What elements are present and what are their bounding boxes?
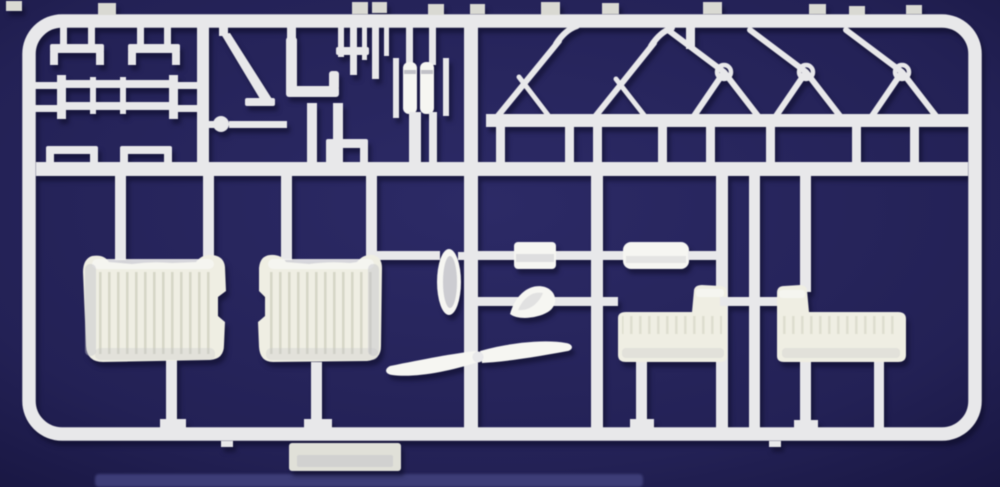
background-edge-strip <box>95 474 643 487</box>
vertical-runner-a <box>197 27 209 163</box>
bucket-seat-right <box>258 255 382 362</box>
sprue-photo-svg: Photograph of a white injection-molded m… <box>0 0 1000 487</box>
label-plate <box>289 443 401 471</box>
bucket-seat-left <box>83 255 226 362</box>
mid-runner <box>36 162 968 176</box>
vertical-runner-c <box>464 21 478 434</box>
sub-runner <box>486 114 972 127</box>
sprue-photo: Photograph of a white injection-molded m… <box>0 0 1000 487</box>
rod-part-2 <box>333 103 343 164</box>
rod-part-1 <box>307 103 317 164</box>
background <box>0 0 1000 487</box>
